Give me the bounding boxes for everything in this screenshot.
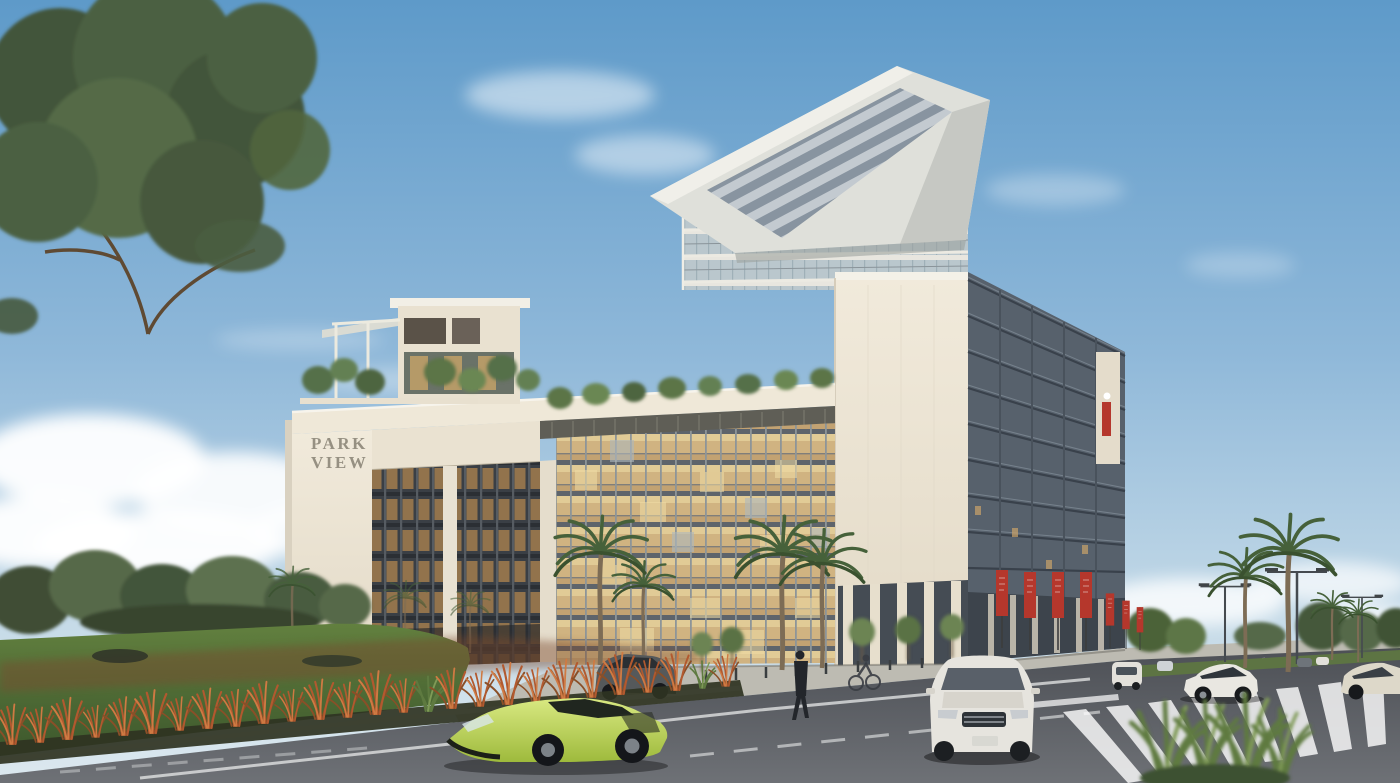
corner-banner xyxy=(1102,402,1111,436)
sign-line-2: VIEW xyxy=(311,453,368,472)
sign-line-1: PARK xyxy=(311,434,368,453)
white-suv-mid xyxy=(1112,662,1142,690)
scene: PARK VIEW xyxy=(0,0,1400,783)
white-suv-front xyxy=(924,656,1040,766)
facade-emblem xyxy=(1104,393,1111,400)
corner-pier xyxy=(1096,352,1120,464)
rendering-canvas: PARK VIEW xyxy=(0,0,1400,783)
park-view-sign: PARK VIEW xyxy=(311,434,368,472)
